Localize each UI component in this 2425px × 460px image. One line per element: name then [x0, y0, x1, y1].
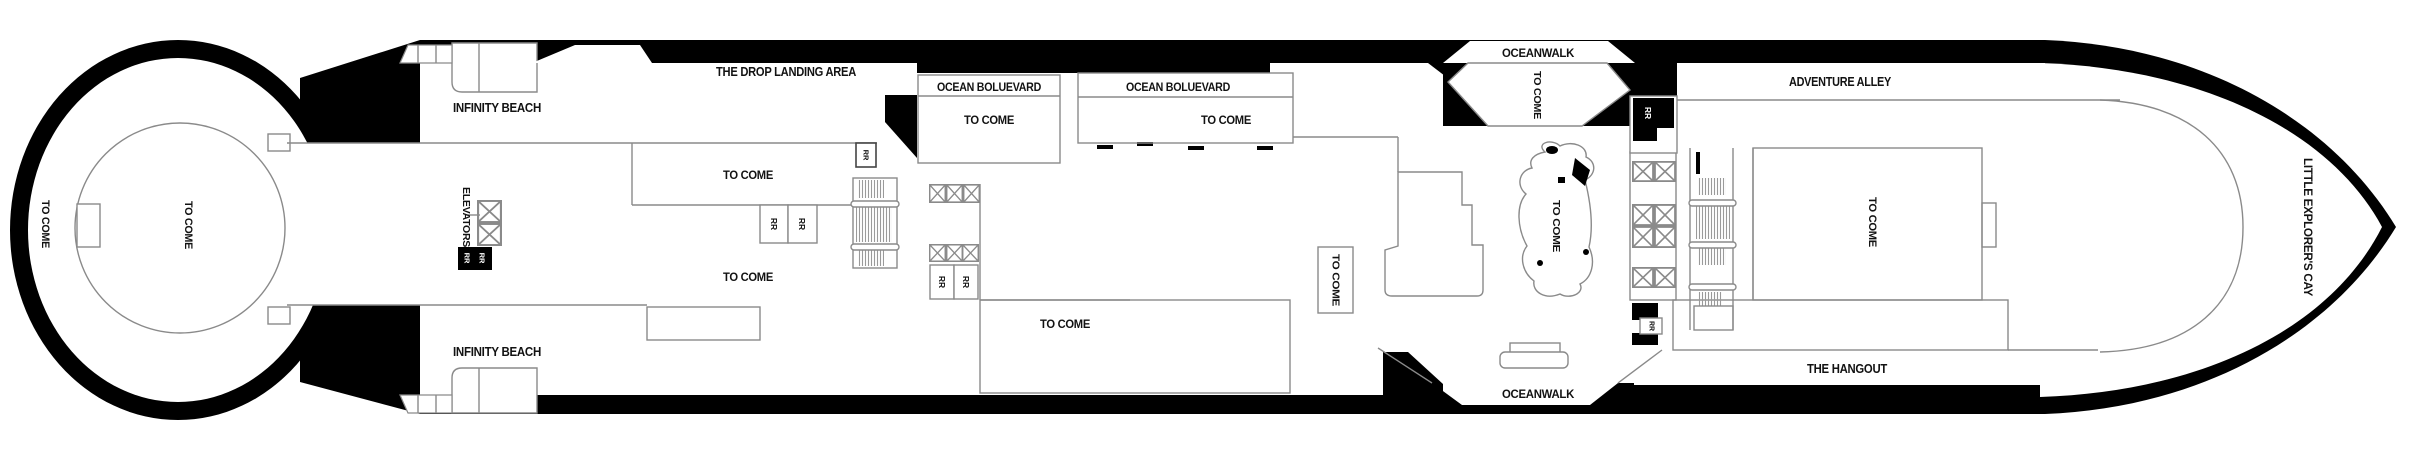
restroom-icon: RR	[463, 253, 472, 264]
label-infinity-beach-top: INFINITY BEACH	[453, 101, 541, 115]
label-ocean-boulevard-2: OCEAN BOLUEVARD	[1126, 80, 1231, 94]
restroom-icon: RR	[797, 218, 807, 230]
restroom-icon: RR	[937, 276, 947, 288]
label-to-come-corridor-lower: TO COME	[723, 272, 774, 284]
restroom-icon: RR	[862, 150, 871, 161]
label-to-come-bow-tip: TO COME	[39, 200, 51, 248]
label-to-come-hexagon: TO COME	[1531, 71, 1543, 119]
label-the-hangout: THE HANGOUT	[1807, 362, 1888, 376]
label-to-come-ob1: TO COME	[964, 115, 1015, 127]
restroom-icon: RR	[478, 253, 487, 264]
label-elevators: ELEVATORS	[460, 187, 472, 247]
restroom-icon: RR	[961, 276, 971, 288]
restroom-corridor: RR	[856, 143, 876, 167]
label-oceanwalk-top: OCEANWALK	[1502, 46, 1575, 60]
deck-plan-svg: RR RR RR RR RR RR RR RR RR THE DROP LAND…	[0, 0, 2425, 460]
elevator-bank-aft	[1630, 152, 1676, 300]
deck-plan: RR RR RR RR RR RR RR RR RR THE DROP LAND…	[0, 0, 2425, 460]
label-to-come-aft-room: TO COME	[1866, 197, 1878, 247]
label-the-drop-landing-area: THE DROP LANDING AREA	[716, 65, 856, 79]
label-to-come-ob2: TO COME	[1201, 115, 1252, 127]
label-ocean-boulevard-1: OCEAN BOLUEVARD	[937, 80, 1042, 94]
label-oceanwalk-bottom: OCEANWALK	[1502, 387, 1575, 401]
restroom-mid: RR RR	[930, 265, 978, 299]
restroom-icon: RR	[1648, 321, 1655, 331]
label-to-come-bow-circle: TO COME	[182, 201, 194, 249]
label-to-come-small-room: TO COME	[1330, 254, 1341, 307]
restroom-forward: RR RR	[458, 247, 492, 270]
label-to-come-rock: TO COME	[1550, 200, 1562, 252]
restroom-aft-upper: RR	[1630, 96, 1677, 153]
label-infinity-beach-bottom: INFINITY BEACH	[453, 345, 541, 359]
restroom-midleft: RR RR	[760, 205, 817, 243]
label-adventure-alley: ADVENTURE ALLEY	[1789, 75, 1892, 89]
label-little-explorers-cay: LITTLE EXPLORER'S CAY	[2301, 158, 2313, 297]
restroom-icon: RR	[1643, 107, 1653, 119]
label-to-come-mid-lower: TO COME	[1040, 319, 1091, 331]
restroom-icon: RR	[769, 218, 779, 230]
label-to-come-corridor-upper: TO COME	[723, 170, 774, 182]
